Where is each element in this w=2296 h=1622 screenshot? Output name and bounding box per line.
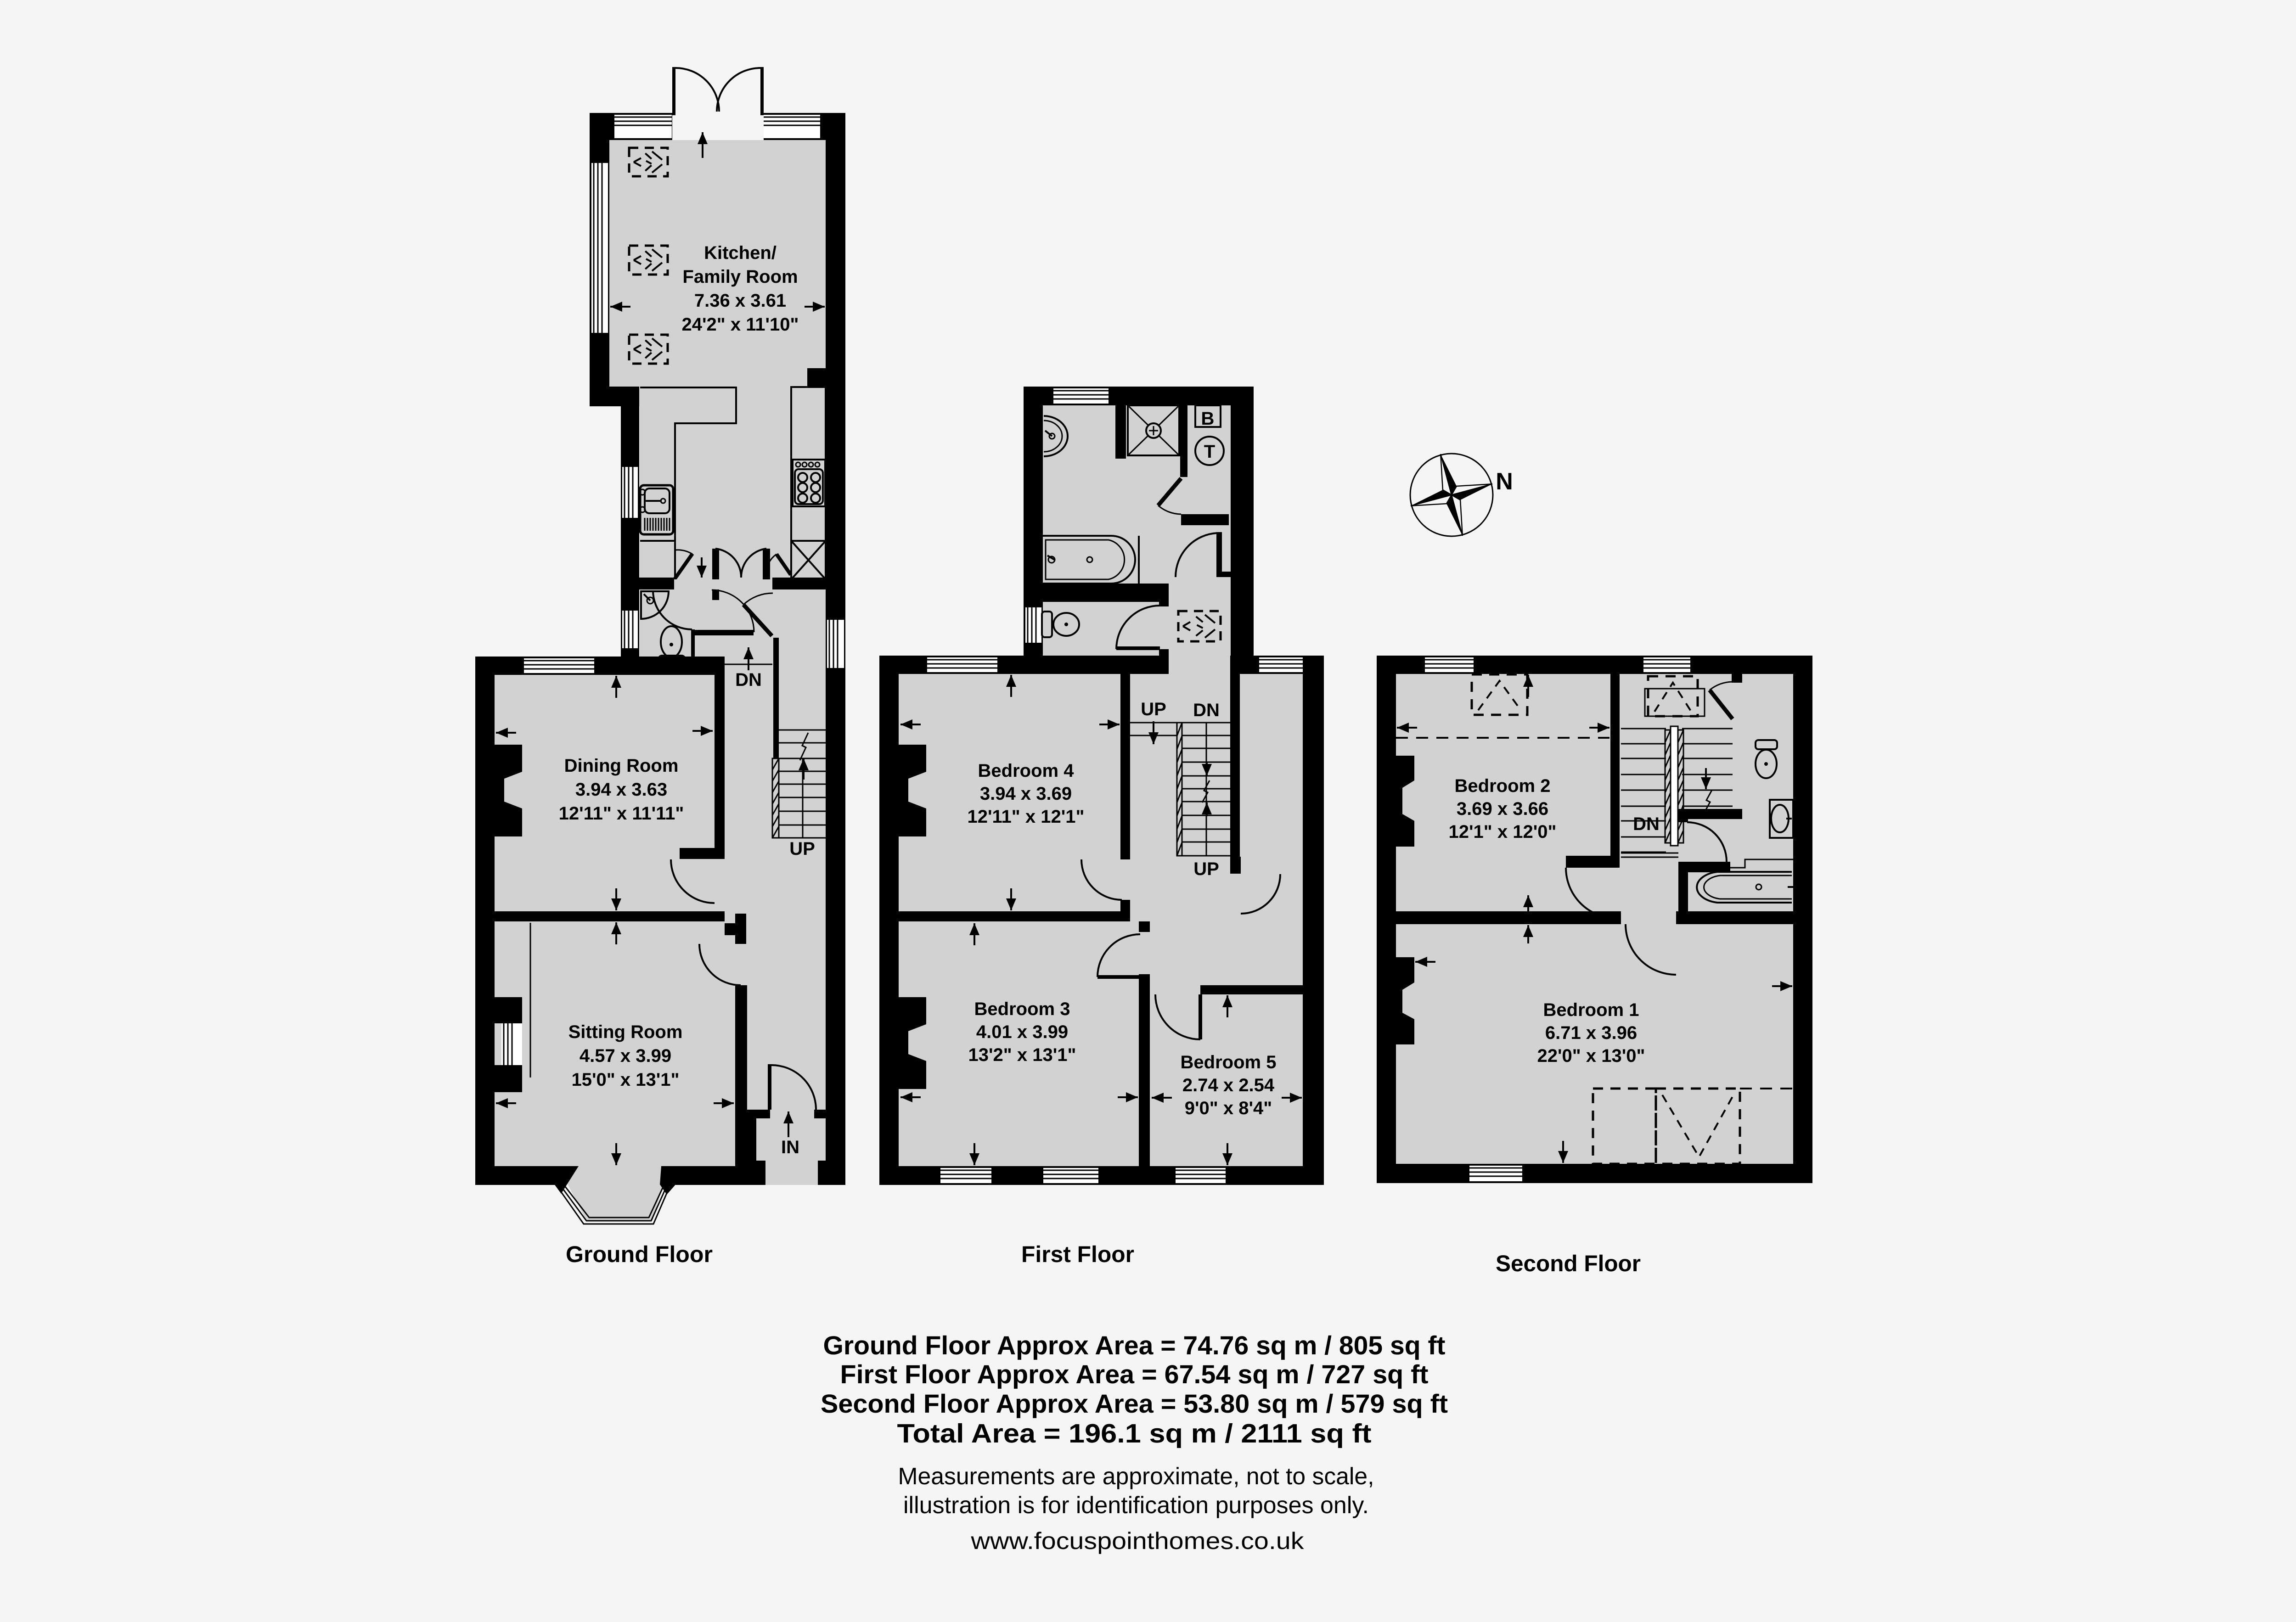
svg-text:Bedroom 4: Bedroom 4 (978, 761, 1075, 781)
svg-text:Total Area = 196.1 sq m / 2111: Total Area = 196.1 sq m / 2111 sq ft (897, 1419, 1372, 1448)
svg-text:www.focuspointhomes.co.uk: www.focuspointhomes.co.uk (970, 1528, 1304, 1555)
svg-text:UP: UP (1141, 699, 1166, 719)
svg-text:Bedroom 1: Bedroom 1 (1543, 1000, 1639, 1020)
svg-text:Second Floor: Second Floor (1496, 1251, 1641, 1276)
svg-text:15'0" x 13'1": 15'0" x 13'1" (572, 1070, 680, 1090)
svg-text:T: T (1204, 442, 1215, 462)
svg-text:4.57 x 3.99: 4.57 x 3.99 (580, 1046, 671, 1066)
svg-text:B: B (1201, 409, 1215, 429)
svg-text:Measurements are approximate,: Measurements are approximate, not to sca… (898, 1463, 1374, 1490)
svg-text:First Floor Approx Area = 67.: First Floor Approx Area = 67.54 sq m / 7… (840, 1360, 1429, 1389)
svg-text:22'0" x 13'0": 22'0" x 13'0" (1537, 1046, 1645, 1066)
svg-text:Kitchen/: Kitchen/ (704, 243, 777, 263)
svg-text:Ground Floor: Ground Floor (566, 1241, 713, 1267)
svg-text:First Floor: First Floor (1021, 1241, 1134, 1267)
svg-text:Bedroom 5: Bedroom 5 (1181, 1052, 1277, 1072)
svg-text:24'2" x 11'10": 24'2" x 11'10" (682, 314, 799, 335)
svg-text:UP: UP (789, 839, 815, 859)
svg-text:4.01 x 3.99: 4.01 x 3.99 (976, 1022, 1068, 1042)
svg-text:Second Floor Approx Area = 53: Second Floor Approx Area = 53.80 sq m / … (821, 1389, 1448, 1419)
svg-text:illustration is for identifica: illustration is for identification purpo… (903, 1492, 1369, 1519)
svg-text:UP: UP (1193, 859, 1219, 879)
svg-text:Family Room: Family Room (682, 267, 798, 287)
svg-text:IN: IN (781, 1137, 799, 1157)
svg-text:DN: DN (1193, 700, 1220, 720)
svg-text:12'11" x 12'1": 12'11" x 12'1" (968, 807, 1085, 827)
svg-text:Ground Floor Approx Area = 74.: Ground Floor Approx Area = 74.76 sq m / … (823, 1331, 1446, 1360)
svg-text:DN: DN (735, 670, 762, 690)
svg-text:DN: DN (1633, 814, 1660, 834)
svg-text:2.74 x 2.54: 2.74 x 2.54 (1182, 1075, 1275, 1095)
svg-text:3.94 x 3.63: 3.94 x 3.63 (575, 780, 667, 800)
svg-text:12'11" x 11'11": 12'11" x 11'11" (559, 803, 684, 824)
svg-text:3.94 x 3.69: 3.94 x 3.69 (980, 784, 1072, 804)
svg-text:13'2" x 13'1": 13'2" x 13'1" (968, 1045, 1076, 1065)
svg-text:Dining Room: Dining Room (564, 756, 679, 776)
svg-text:6.71 x 3.96: 6.71 x 3.96 (1545, 1023, 1637, 1043)
svg-text:Sitting Room: Sitting Room (568, 1022, 683, 1042)
svg-text:Bedroom 3: Bedroom 3 (974, 999, 1070, 1019)
svg-text:7.36 x 3.61: 7.36 x 3.61 (694, 291, 786, 311)
svg-text:3.69 x 3.66: 3.69 x 3.66 (1457, 799, 1548, 819)
svg-text:N: N (1496, 468, 1513, 495)
svg-text:12'1" x 12'0": 12'1" x 12'0" (1449, 822, 1557, 842)
svg-text:Bedroom 2: Bedroom 2 (1455, 776, 1551, 796)
svg-text:9'0" x 8'4": 9'0" x 8'4" (1185, 1098, 1272, 1118)
